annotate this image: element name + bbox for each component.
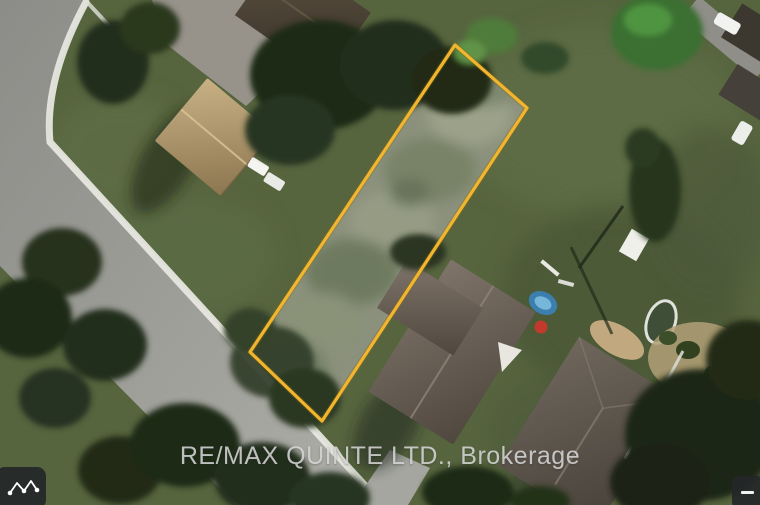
zoom-out-button[interactable] [732, 476, 760, 505]
brokerage-watermark: RE/MAX QUINTE LTD., Brokerage [0, 442, 760, 471]
minus-icon [741, 491, 754, 494]
zigzag-polyline-icon [0, 467, 46, 505]
satellite-map-view: RE/MAX QUINTE LTD., Brokerage [0, 0, 760, 505]
red-ball [535, 321, 548, 334]
satellite-imagery [0, 0, 760, 505]
measure-path-button[interactable] [0, 467, 46, 505]
